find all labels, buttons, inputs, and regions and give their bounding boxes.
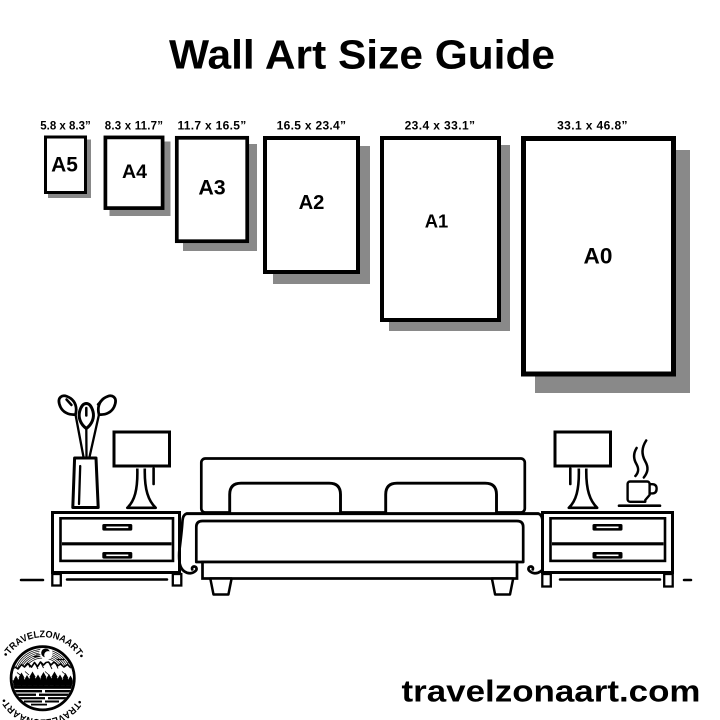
svg-text:5.8 x 8.3”: 5.8 x 8.3” [40,121,91,133]
svg-text:A0: A0 [584,244,613,269]
svg-text:A5: A5 [51,154,78,177]
svg-text:A2: A2 [299,192,325,214]
svg-text:8.3 x 11.7”: 8.3 x 11.7” [105,121,163,133]
svg-text:16.5 x 23.4”: 16.5 x 23.4” [277,119,347,133]
svg-text:A1: A1 [425,211,449,232]
svg-text:A3: A3 [198,175,225,199]
svg-text:A4: A4 [122,161,147,183]
svg-text:33.1 x 46.8”: 33.1 x 46.8” [557,119,628,133]
svg-text:Wall Art Size Guide: Wall Art Size Guide [169,31,555,77]
svg-text:23.4 x 33.1”: 23.4 x 33.1” [405,119,476,133]
svg-text:11.7 x 16.5”: 11.7 x 16.5” [178,119,247,133]
svg-text:travelzonaart.com: travelzonaart.com [402,675,701,709]
